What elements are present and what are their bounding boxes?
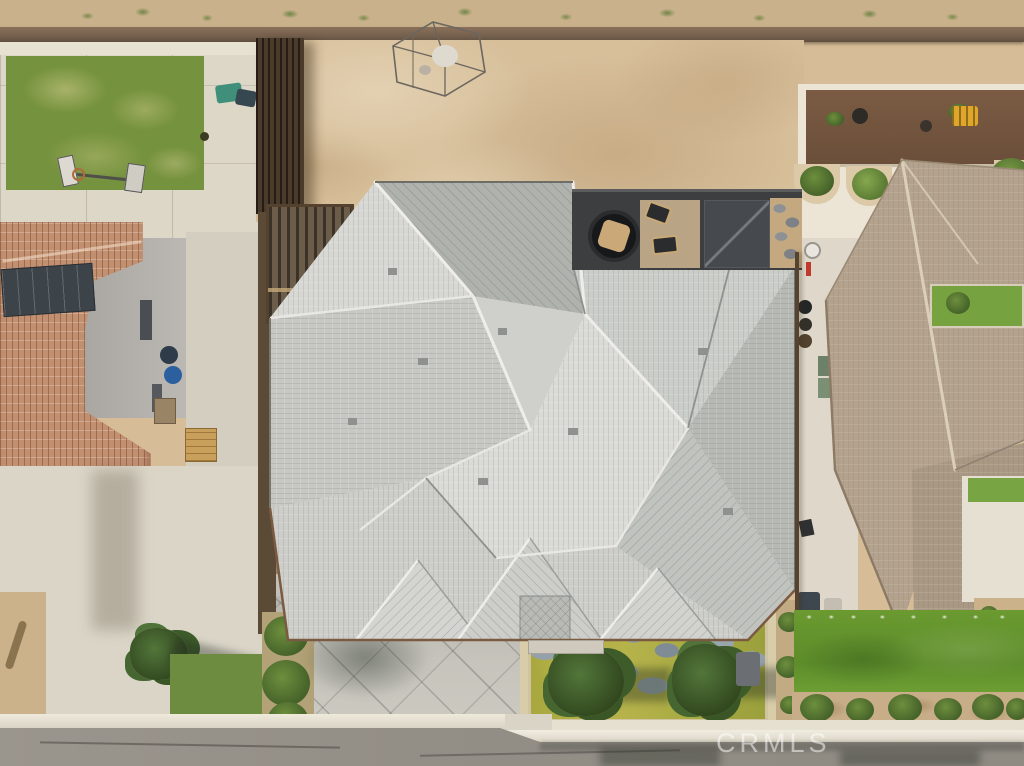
left-house-window (140, 300, 152, 340)
right-front-lawn (794, 610, 1024, 698)
bed-plant-1 (826, 112, 844, 126)
parkway-shrub-4 (934, 698, 962, 722)
basketball-backboard-2 (124, 163, 146, 193)
stacked-pots-2 (799, 318, 812, 331)
curb-left (0, 714, 505, 728)
desert-shrub (60, 6, 980, 26)
wire-cage (383, 16, 491, 100)
parkway-shrub-6 (1006, 698, 1024, 720)
bottom-left-grass (170, 654, 268, 718)
left-walk-strip (0, 42, 262, 55)
driveway-stain (92, 470, 138, 630)
lawn-flower-border (798, 612, 1020, 622)
ball-on-lawn (200, 132, 209, 141)
right-turf-strip-2 (968, 478, 1024, 502)
right-property-fence (795, 252, 799, 612)
wood-crate (185, 428, 217, 462)
trash-bin-blue (164, 366, 182, 384)
bed-pot-2 (920, 120, 932, 132)
courtyard-tree-2 (672, 644, 742, 716)
aerial-photo: CRMLS (0, 0, 1024, 766)
turf-planter-bush (946, 292, 970, 314)
solar-panel (0, 263, 95, 317)
storage-box (154, 398, 176, 424)
crmls-watermark: CRMLS (716, 730, 831, 757)
courtyard-bench (736, 652, 760, 686)
street-tree-shadow-2 (840, 750, 980, 766)
parkway-shrub-2 (846, 698, 874, 722)
street-tree-shadow (600, 748, 720, 766)
parkway-shrub-1 (800, 694, 834, 722)
yellow-equipment (952, 106, 978, 126)
trash-bin-dark (160, 346, 178, 364)
stacked-pots (798, 300, 812, 314)
entry-step (528, 640, 604, 654)
shade-square (704, 200, 770, 268)
patio-chair-2 (651, 235, 679, 256)
dark-chair (235, 88, 257, 107)
left-lawn (6, 56, 204, 190)
red-marker (806, 262, 811, 276)
bed-pot (852, 108, 868, 124)
parkway-shrub-3 (888, 694, 922, 722)
parkway-shrub-5 (972, 694, 1004, 720)
right-turf-strip (930, 284, 1024, 328)
courtyard-tree-1 (548, 646, 624, 716)
stacked-pots-3 (798, 334, 812, 348)
basketball-hoop-icon (72, 168, 85, 181)
